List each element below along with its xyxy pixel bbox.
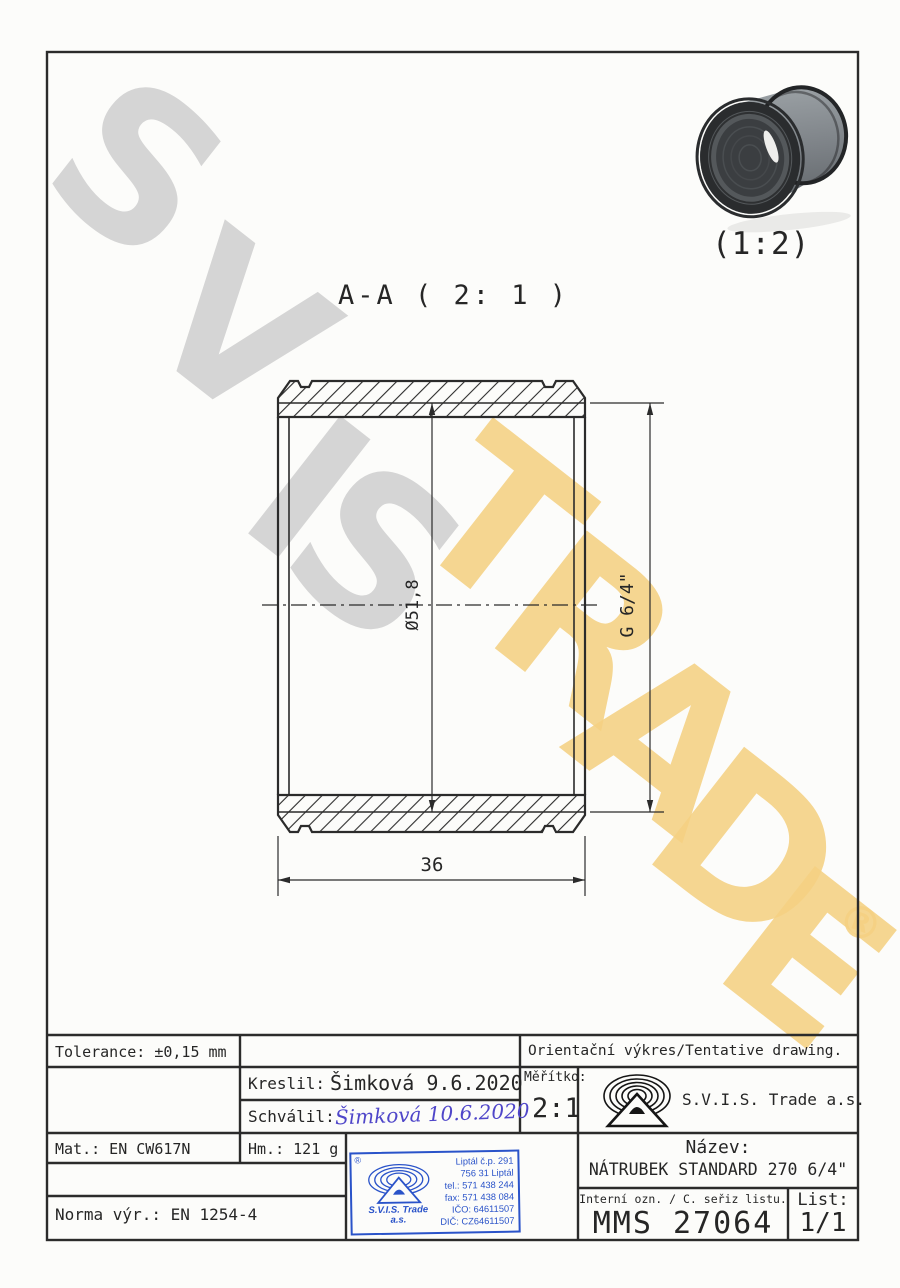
stamp-company-name: S.V.I.S. Trade a.s. <box>356 1205 440 1226</box>
part-title: NÁTRUBEK STANDARD 270 6/4" <box>578 1160 858 1179</box>
stamp-logo-icon <box>359 1162 438 1207</box>
drawn-by-label: Kreslil: <box>248 1074 325 1093</box>
weight-value: Hm.: 121 g <box>248 1140 338 1158</box>
approved-by-label: Schválil: <box>248 1107 335 1126</box>
dim-length-label: 36 <box>421 854 444 876</box>
dim-diameter-label: Ø51,8 <box>403 579 423 630</box>
internal-code-value: MMS 27064 <box>578 1206 788 1241</box>
stamp-address: Liptál č.p. 291 756 31 Liptál tel.: 571 … <box>439 1155 515 1229</box>
dim-thread-label: G 6/4" <box>617 572 638 637</box>
view-label: A-A ( 2: 1 ) <box>338 280 569 311</box>
material-value: Mat.: EN CW617N <box>55 1140 190 1158</box>
sheet-value: 1/1 <box>788 1208 858 1238</box>
title-label: Název: <box>578 1137 858 1158</box>
tolerance-value: Tolerance: ±0,15 mm <box>55 1043 227 1061</box>
drawn-by-value: Šimková 9.6.2020 <box>330 1071 523 1095</box>
company-name: S.V.I.S. Trade a.s. <box>682 1090 865 1109</box>
drawing-sheet: S V I S T R A D E ® <box>0 0 900 1288</box>
internal-code-label: Interní ozn. / C. seřiz listu. <box>578 1192 788 1206</box>
section-view: Ø51,8 G 6/4" 36 <box>250 350 710 930</box>
standard-value: Norma výr.: EN 1254-4 <box>55 1205 257 1224</box>
stamp-company-line2: a.s. <box>390 1214 406 1225</box>
svis-logo-icon <box>598 1072 676 1130</box>
part-photo <box>692 60 867 238</box>
scale-label: Měřítko: <box>524 1070 587 1085</box>
photo-scale-label: (1:2) <box>712 226 810 262</box>
scale-value: 2:1 <box>532 1093 581 1124</box>
stamp-address-line: DIČ: CZ64611507 <box>440 1215 514 1228</box>
tentative-drawing-note: Orientační výkres/Tentative drawing. <box>528 1043 842 1059</box>
company-stamp: ® S.V.I.S. Trade a.s. Liptál č.p. 291 75… <box>349 1150 520 1236</box>
sheet-label: List: <box>788 1190 858 1210</box>
